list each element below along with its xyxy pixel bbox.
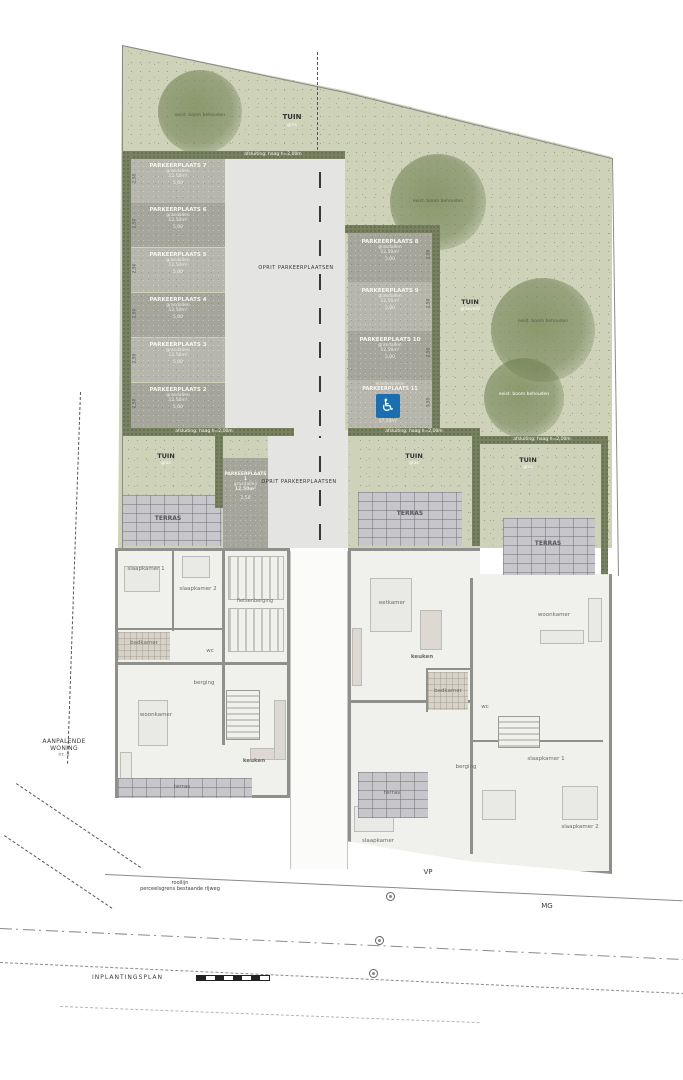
stall-depth: 2,50 [223, 496, 268, 501]
garden-top-sublabel: gras [272, 123, 312, 129]
wall [222, 551, 225, 665]
room-label: wc [200, 648, 220, 654]
parcel-dashed-line [67, 392, 81, 764]
driveway-label: OPRIT PARKEERPLAATSEN [244, 479, 354, 485]
wall [222, 665, 225, 745]
wall [118, 662, 287, 665]
tree-label: exist. boom behouden [495, 319, 591, 325]
parking-stall-9: PARKEERPLAATS 9 grasdallen 12,50m² 5,00 [348, 282, 432, 331]
stall-title: PARKEERPLAATS 3 [131, 338, 225, 348]
room-label: badkamer [120, 640, 168, 646]
stall-depth: 2,50 [133, 173, 138, 183]
site-plan-canvas: exist. boom behouden exist. boom behoude… [0, 0, 683, 1080]
tree-label: exist. boom behouden [392, 199, 484, 205]
tree-label: exist. boom behouden [158, 113, 242, 119]
garden-1-label: TUIN [146, 452, 186, 460]
room-label: slaapkamer 1 [118, 566, 174, 572]
bathroom-tiles [118, 632, 170, 660]
plan-title: INPLANTINGSPLAN [92, 974, 202, 981]
lot-division-dashed-line [317, 52, 318, 150]
garden-top-label: TUIN [272, 113, 312, 122]
hedge-strip [472, 436, 480, 546]
room-label: wc [476, 704, 494, 710]
staircase [226, 690, 260, 740]
stall-depth: 2,50 [133, 308, 138, 318]
driveway [225, 158, 345, 430]
tree [158, 70, 242, 154]
wheelchair-icon: ♿ [376, 394, 400, 418]
sofa [588, 598, 602, 642]
staircase [498, 716, 540, 748]
garden-2-sublabel: gras [394, 461, 434, 467]
room-label: slaapkamer [352, 838, 404, 844]
bed [482, 790, 516, 820]
room-label: keuken [400, 654, 444, 660]
stall-depth: 2,50 [133, 353, 138, 363]
stall-area: 12,50m² [131, 263, 225, 268]
parking-stall-3: PARKEERPLAATS 3 grasdallen 12,50m² 5,00 [131, 338, 225, 382]
stall-depth: 3,50 [427, 397, 432, 407]
stall-depth: 2,50 [133, 398, 138, 408]
stall-title: PARKEERPLAATS 9 [348, 282, 432, 294]
hedge-strip [601, 440, 608, 575]
garden-mid-sublabel: grasveld [448, 307, 492, 313]
bed [182, 556, 210, 578]
adjacent-line-1: AANPALENDE [28, 738, 100, 745]
room-label: terras [370, 790, 414, 796]
stall-depth: 2,50 [133, 263, 138, 273]
room-label: woonkamer [526, 612, 582, 618]
driveway-label: OPRIT PARKEERPLAATSEN [236, 265, 356, 271]
room-label: berging [184, 680, 224, 686]
boundary-line-east [612, 158, 619, 576]
parking-stall-2: PARKEERPLAATS 2 grasdallen 12,50m² 5,00 [131, 383, 225, 428]
parcel-dashed-line [4, 835, 112, 909]
hedge-strip [215, 432, 223, 508]
hedge-label: afsluiting: haag h=2,00m [480, 437, 604, 443]
parking-stall-5: PARKEERPLAATS 5 grasdallen 12,50m² 5,00 [131, 248, 225, 292]
stall-depth: 2,50 [427, 298, 432, 308]
stall-area: 12,50m² [131, 174, 225, 179]
room-label: keuken [232, 758, 276, 764]
hedge-label: afsluiting: haag h=2,00m [350, 429, 478, 435]
hedge-strip [432, 225, 440, 432]
wall [470, 578, 473, 854]
stall-title: PARKEERPLAATS 8 [348, 233, 432, 245]
stall-area: 17,50m² [368, 419, 408, 424]
room-label: woonkamer [128, 712, 184, 718]
driveway-lower [268, 430, 348, 548]
bike-rack [228, 608, 284, 652]
boundary-line-west [122, 45, 123, 548]
room-label: badkamer [426, 688, 470, 694]
stall-title: PARKEERPLAATS 11 [348, 386, 432, 392]
stall-title: PARKEERPLAATS 4 [131, 293, 225, 303]
room-label: slaapkamer 1 [518, 756, 574, 762]
stall-width: 5,00 [131, 270, 225, 275]
marker-vp: VP [418, 868, 438, 876]
stall-area: 12,50m² [348, 348, 432, 353]
stall-width: 5,00 [131, 405, 225, 410]
hedge-label: afsluiting: haag h=2,00m [208, 152, 338, 158]
garden-3-sublabel: gras [508, 465, 548, 471]
kitchen-island [420, 610, 442, 650]
room-label: terras [160, 784, 204, 790]
garden-mid-label: TUIN [448, 298, 492, 306]
stall-title: PARKEERPLAATS 10 [348, 331, 432, 343]
hedge-strip [122, 151, 131, 432]
stall-width: 5,00 [348, 306, 432, 311]
tree [484, 358, 564, 438]
boundary-note: rooilijn perceelsgrens bestaande rijweg [110, 880, 250, 892]
room-label: berging [446, 764, 486, 770]
road-edge-line-dashed [60, 1006, 480, 1023]
room-label: eetkamer [368, 600, 416, 606]
marker-mg: MG [536, 902, 558, 910]
tree-label: exist. boom behouden [482, 392, 566, 398]
terrace-3-label: TERRAS [518, 540, 578, 548]
stall-depth: 2,50 [427, 347, 432, 357]
stall-area: 12,50m² [131, 308, 225, 313]
stall-area: 12,50m² [131, 218, 225, 223]
terrace-1-label: TERRAS [138, 515, 198, 523]
parking-stall-10: PARKEERPLAATS 10 grasdallen 12,50m² 5,00 [348, 331, 432, 380]
stall-width: 5,00 [131, 181, 225, 186]
stall-area: 12,50m² [131, 398, 225, 403]
wall [426, 668, 470, 670]
stall-width: 5,00 [131, 360, 225, 365]
sofa [540, 630, 584, 644]
garden-2-label: TUIN [394, 452, 434, 460]
manhole-symbol [369, 969, 378, 978]
driveway-centerline [319, 164, 321, 426]
parking-stall-8: PARKEERPLAATS 8 grasdallen 12,50m² 5,00 [348, 233, 432, 282]
room-label: slaapkamer 2 [174, 586, 222, 592]
garden-1-sublabel: gras [146, 461, 186, 467]
parking-stall-7: PARKEERPLAATS 7 grasdallen 12,50m² 5,00 [131, 159, 225, 203]
terrace-2 [358, 492, 462, 546]
stall-title: PARKEERPLAATS 5 [131, 248, 225, 258]
adjacent-line-2: WONING [28, 745, 100, 752]
scale-bar [196, 975, 270, 981]
wall [118, 628, 224, 630]
manhole-symbol [375, 936, 384, 945]
stall-width: 5,00 [131, 225, 225, 230]
stall-width: 5,00 [348, 257, 432, 262]
terrace-2-label: TERRAS [380, 510, 440, 518]
stall-area: 12,50m² [223, 487, 268, 492]
stall-area: 12,50m² [131, 353, 225, 358]
manhole-symbol [386, 892, 395, 901]
dining-table [138, 700, 168, 746]
adjacent-dwelling-label: AANPALENDE WONING nr. 8 [28, 738, 100, 758]
stall-title: PARKEERPLAATS 2 [131, 383, 225, 393]
road-axis-line [0, 928, 683, 960]
stall-title: PARKEERPLAATS 7 [131, 159, 225, 169]
bike-rack [228, 556, 284, 600]
stall-area: 12,50m² [348, 299, 432, 304]
path-between-buildings [290, 551, 348, 869]
parking-stall-1: PARKEERPLAATS 1 grasdallen 12,50m² 2,50 [223, 458, 268, 548]
stall-width: 5,00 [131, 315, 225, 320]
room-label: fietsenberging [224, 598, 286, 604]
note-line-2: perceelsgrens bestaande rijweg [110, 886, 250, 892]
hedge-label: afsluiting: haag h=2,00m [134, 429, 274, 435]
wheelchair-glyph: ♿ [380, 396, 395, 416]
garden-3-label: TUIN [508, 456, 548, 464]
hedge-strip [345, 225, 440, 233]
stall-width: 5,00 [348, 355, 432, 360]
parking-stall-4: PARKEERPLAATS 4 grasdallen 12,50m² 5,00 [131, 293, 225, 337]
stall-title: PARKEERPLAATS 6 [131, 203, 225, 213]
stall-depth: 2,50 [427, 249, 432, 259]
room-label: slaapkamer 2 [552, 824, 608, 830]
parking-stall-6: PARKEERPLAATS 6 grasdallen 12,50m² 5,00 [131, 203, 225, 247]
driveway-centerline [319, 436, 321, 540]
bed [562, 786, 598, 820]
adjacent-line-3: nr. 8 [28, 752, 100, 758]
stall-depth: 2,50 [133, 218, 138, 228]
stall-area: 12,50m² [348, 250, 432, 255]
kitchen-counter [352, 628, 362, 686]
kitchen-counter [274, 700, 286, 760]
